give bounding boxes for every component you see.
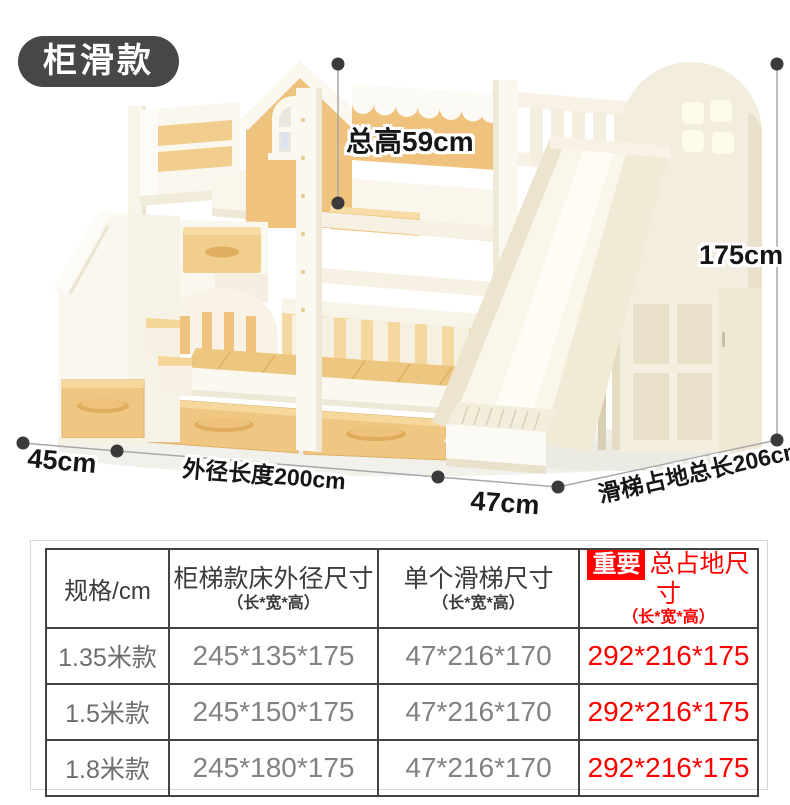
right-height-label: 175cm bbox=[699, 242, 783, 269]
col-bed-title: 柜梯款床外径尺寸 bbox=[170, 565, 377, 594]
col-spec-title: 规格/cm bbox=[47, 571, 168, 606]
row1-bed-size: 245*135*175 bbox=[169, 628, 378, 684]
slide-steps bbox=[446, 402, 558, 474]
front-left-post bbox=[296, 88, 322, 452]
col-total-title-text: 总占地尺寸 bbox=[649, 550, 749, 608]
table-row: 1.35米款 245*135*175 47*216*170 292*216*17… bbox=[46, 628, 758, 684]
col-spec-header: 规格/cm bbox=[46, 549, 169, 628]
tower-cubbies bbox=[625, 296, 720, 448]
left-depth-label: 45cm bbox=[21, 445, 103, 479]
row2-total-size: 292*216*175 bbox=[579, 684, 758, 740]
row2-slide-size: 47*216*170 bbox=[378, 684, 579, 740]
row3-bed-size: 245*180*175 bbox=[169, 740, 378, 796]
row1-spec: 1.35米款 bbox=[46, 628, 169, 684]
row3-total-size: 292*216*175 bbox=[579, 740, 758, 796]
spec-table: 规格/cm 柜梯款床外径尺寸 （长*宽*高） 单个滑梯尺寸 （长*宽*高） 重要… bbox=[45, 548, 759, 797]
row3-slide-size: 47*216*170 bbox=[378, 740, 579, 796]
row2-bed-size: 245*150*175 bbox=[169, 684, 378, 740]
col-slide-header: 单个滑梯尺寸 （长*宽*高） bbox=[378, 549, 579, 628]
spec-table-header-row: 规格/cm 柜梯款床外径尺寸 （长*宽*高） 单个滑梯尺寸 （长*宽*高） 重要… bbox=[46, 549, 758, 628]
tower-door bbox=[719, 288, 762, 452]
row1-slide-size: 47*216*170 bbox=[378, 628, 579, 684]
row3-spec: 1.8米款 bbox=[46, 740, 169, 796]
col-total-subtitle: （长*宽*高） bbox=[580, 609, 757, 627]
table-row: 1.5米款 245*150*175 47*216*170 292*216*175 bbox=[46, 684, 758, 740]
table-row: 1.8米款 245*180*175 47*216*170 292*216*175 bbox=[46, 740, 758, 796]
col-slide-title: 单个滑梯尺寸 bbox=[379, 565, 578, 594]
col-bed-subtitle: （长*宽*高） bbox=[170, 595, 377, 613]
product-image: 柜滑款 总高59cm 175cm 45cm 外径长度200cm 47cm 滑梯占… bbox=[0, 0, 790, 805]
variant-badge: 柜滑款 bbox=[18, 36, 179, 87]
col-total-title: 重要总占地尺寸 bbox=[580, 550, 757, 608]
spec-table-frame: 规格/cm 柜梯款床外径尺寸 （长*宽*高） 单个滑梯尺寸 （长*宽*高） 重要… bbox=[30, 540, 768, 790]
row1-total-size: 292*216*175 bbox=[579, 628, 758, 684]
col-bed-header: 柜梯款床外径尺寸 （长*宽*高） bbox=[169, 549, 378, 628]
col-slide-subtitle: （长*宽*高） bbox=[379, 595, 578, 613]
stairs bbox=[52, 209, 192, 446]
total-height-label: 总高59cm bbox=[346, 128, 474, 156]
row2-spec: 1.5米款 bbox=[46, 684, 169, 740]
slide-width-label: 47cm bbox=[464, 487, 546, 520]
col-total-header: 重要总占地尺寸 （长*宽*高） bbox=[579, 549, 758, 628]
important-badge: 重要 bbox=[587, 550, 645, 580]
